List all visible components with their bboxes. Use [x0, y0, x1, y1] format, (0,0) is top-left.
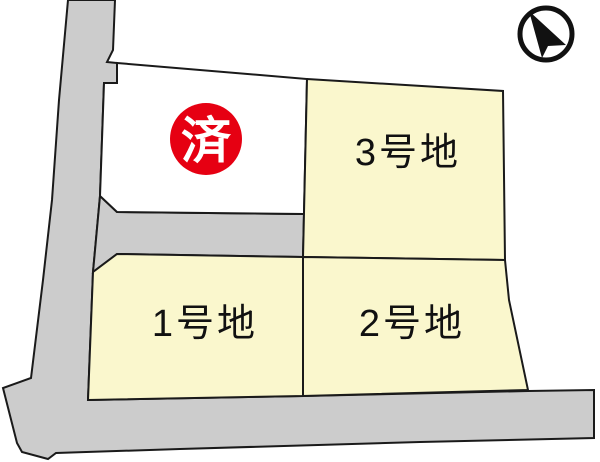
lot-1-label: 1号地: [152, 303, 258, 345]
north-arrow-icon: [520, 8, 572, 60]
sold-badge-text: 済: [181, 113, 232, 169]
lot-layout-diagram: 3号地 1号地 2号地 済: [0, 0, 600, 462]
sold-badge: 済: [170, 103, 242, 175]
lot-layout-canvas: 3号地 1号地 2号地 済: [0, 0, 600, 462]
lot-3-label: 3号地: [355, 132, 461, 174]
north-arrow-pointer: [529, 11, 566, 58]
lot-2-label: 2号地: [359, 303, 465, 345]
